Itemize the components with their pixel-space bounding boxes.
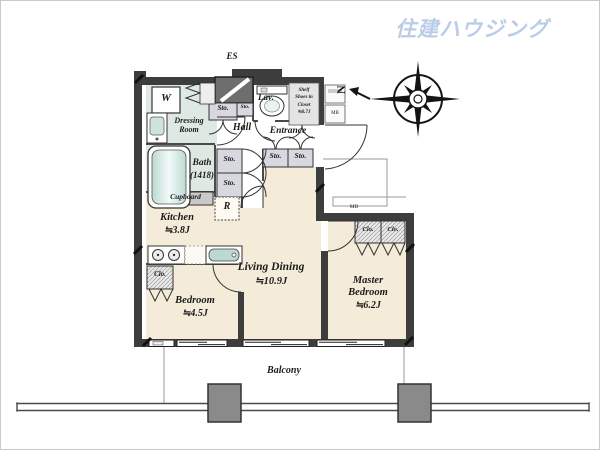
room-label-lav: Lav. xyxy=(252,92,280,102)
window-master xyxy=(317,340,385,347)
window-living xyxy=(243,340,309,347)
storage-label: Sto. xyxy=(288,152,313,160)
north-arrow xyxy=(356,92,370,99)
es-label: ES xyxy=(220,51,244,61)
room-label-bedroom: Bedroom xyxy=(159,295,231,307)
compass-rose: N xyxy=(334,61,460,137)
room-label-hall: Hall xyxy=(221,122,263,133)
mb-box-label: MB xyxy=(325,111,345,117)
alcove-outline xyxy=(323,159,406,206)
storage-label: Sto. xyxy=(237,104,253,110)
room-label-master: Master Bedroom xyxy=(336,275,400,299)
balcony-pillar xyxy=(208,384,241,422)
room-label-kitchen: Kitchen xyxy=(146,212,208,224)
vanity-icon xyxy=(147,113,167,143)
window-bedroom xyxy=(177,340,227,347)
living-size: ≒10.9J xyxy=(211,276,331,288)
room-label-living: Living Dining xyxy=(211,261,331,274)
balcony-label: Balcony xyxy=(244,365,324,376)
storage-label: Sto. xyxy=(217,179,242,187)
floorplan-drawing: N xyxy=(1,1,599,449)
fridge-label: R xyxy=(215,201,239,212)
bath-size: (1418) xyxy=(182,170,222,180)
storage-label: Sto. xyxy=(263,152,288,160)
master-size: ≒6.2J xyxy=(336,300,400,311)
linen-box xyxy=(200,83,215,104)
windows xyxy=(149,340,385,347)
window-small xyxy=(149,340,174,347)
cupboard-label: Cupboard xyxy=(158,193,213,201)
entrance-door-arc xyxy=(325,125,367,169)
floorplan-canvas: N 住建ハウジング ES W Dressing Room Lav. Hall E… xyxy=(0,0,600,450)
north-label: N xyxy=(334,85,348,94)
mb-alcove-label: MB xyxy=(339,204,369,210)
room-label-bath: Bath xyxy=(187,158,217,169)
shoes-closet-label: Shelf Shoes in Closet ≒0.7J xyxy=(289,87,319,116)
pipe-shaft-icon xyxy=(215,77,253,103)
room-label-entrance: Entrance xyxy=(261,126,315,137)
closet-label: Clo. xyxy=(147,271,173,279)
storage-label: Sto. xyxy=(209,105,237,113)
bedroom-size: ≒4.5J xyxy=(159,308,231,319)
washer-label: W xyxy=(152,92,180,104)
balcony-pillar xyxy=(398,384,431,422)
closet-label: Clo. xyxy=(355,226,381,233)
corridor-floor xyxy=(242,149,263,208)
balcony xyxy=(17,347,589,422)
storage-label: Sto. xyxy=(217,155,242,163)
room-label-dressing: Dressing Room xyxy=(167,117,211,135)
company-logo: 住建ハウジング xyxy=(395,13,549,43)
closet-label: Clo. xyxy=(381,226,405,233)
kitchen-size: ≒3.8J xyxy=(146,225,208,236)
